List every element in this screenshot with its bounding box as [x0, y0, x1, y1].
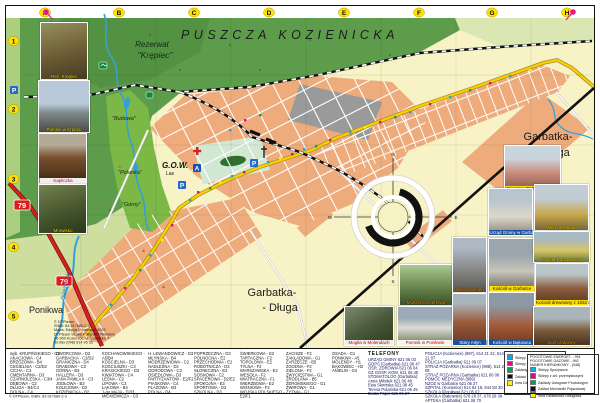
town-map-garbatka: { "map": { "labels": { "forest": "PUSZCZ… — [0, 0, 600, 400]
legend-box-front: POGOTOWIE ENERGET. - 991 POGOTOWIE GAZOW… — [527, 354, 599, 395]
legend-item: Inna Działalność Usługowa — [528, 392, 598, 398]
hamlet-budowa-label: "Budowa" — [112, 116, 137, 122]
street-index-panel: wyb. KRUPIŃSKIEGO - C2 AKACJOWA - C4 BRZ… — [6, 348, 594, 393]
photo-caption: Szkoła Podstawowa — [534, 257, 589, 262]
photo-caption: Stary młyn — [453, 340, 486, 345]
legend-color-swatch — [530, 380, 536, 386]
photo-caption: Urząd Gminy w Garbatce — [489, 230, 532, 235]
photo-krepiec-reserve: Rez. Krępiec — [40, 22, 88, 80]
grid-row-label: 5 — [12, 314, 16, 321]
street-index-column: ŚWIERKOWA - E2 TARTACZNA - F2 TOPOLOWA -… — [240, 352, 292, 399]
photo-school: Szkoła Podstawowa — [533, 231, 590, 263]
photo-caption: Kapliczka — [39, 178, 86, 183]
photo-anthill-forest: Mrowisko — [38, 184, 87, 234]
photo-caption: Pomnik w Krępcu — [39, 127, 89, 132]
legend-color-swatch — [530, 373, 536, 379]
emergency-number: NUMER KIERUNKOWY - (048) — [530, 362, 580, 367]
legend-item-label: Inna Działalność Usługowa — [538, 393, 581, 398]
legend-color-swatch — [507, 354, 513, 360]
street-index-column: KOCHANOWSKIEGO - A5/B4 KOŚCIELNA - D3 KO… — [102, 352, 154, 399]
photo-commune-office: Urząd Gminy w Garbatce — [488, 188, 533, 236]
town-name-bottom-line2: - Długa — [262, 302, 298, 314]
grid-col-label: B — [117, 10, 122, 17]
photo-caption: Kościół w Bąkowcu — [489, 340, 534, 345]
photo-caption: Muszla koncertowa — [400, 300, 452, 305]
photo-old-mill: Stary młyn — [452, 293, 487, 346]
parking-icon: P — [180, 183, 185, 190]
hamlet-gorny-label: "Górny" — [122, 202, 142, 208]
photo-caption: Wieża ciśnień — [453, 287, 486, 292]
photo-ponikwa-monument: Pomnik w Ponikwie — [397, 306, 453, 346]
photo-caption: Pomnik w Ponikwie — [398, 340, 452, 345]
legend-color-swatch — [507, 374, 513, 380]
legend-item-label: Sklepy Spożywcze — [538, 367, 568, 372]
compass-n: N — [391, 152, 394, 157]
grid-col-label: E — [342, 10, 347, 17]
footer-imprint: © DTPteam, ISBN: 83-917680-2-3 — [9, 394, 67, 399]
photo-church-bakowiec: Kościół w Bąkowcu — [488, 292, 535, 346]
photo-caption: Kościół w Garbatce — [489, 286, 534, 291]
publisher-imprint: © DTPteam ISBN: 83-917680-2-3 Mapa. Edyc… — [54, 320, 119, 345]
photo-chapel: Kapliczka — [38, 133, 87, 184]
legend-color-swatch — [507, 367, 513, 373]
phones-column-1: URZĄD GMINY 621 06 03 GOPS (Garbatka) 62… — [368, 358, 424, 396]
photo-church-garbatka: Kościół w Garbatce — [488, 238, 535, 292]
legend-color-swatch — [507, 361, 513, 367]
grid-col-label: C — [192, 10, 197, 17]
legend-item-label: Zakład Mechaniki Pojazdowej — [538, 387, 585, 392]
photo-wooden-villa: Willa drewniana — [534, 184, 589, 231]
gow-sub-label: Las — [166, 171, 175, 177]
photo-caption: Dom zakonny — [534, 340, 590, 345]
street-index-column: ZACISZE - F2 ZAKŁADOWA - G1 ZARZECZE - B… — [286, 352, 338, 395]
legend-item-label: Sklepy z art. przemysłowymi — [538, 374, 583, 379]
photo-water-tower: Wieża ciśnień — [452, 237, 487, 293]
legend-item-label: Zakłady Usługowe Produkcyjne — [538, 380, 588, 385]
grid-col-label: D — [267, 10, 272, 17]
forest-name-label: PUSZCZA KOZIENICKA — [181, 28, 399, 42]
legend-color-swatch — [530, 386, 536, 392]
photo-bandshell: Muszla koncertowa — [399, 264, 453, 306]
gow-label: G.O.W. — [162, 161, 188, 170]
grid-col-label: G — [489, 10, 494, 17]
compass-e: E — [454, 215, 457, 220]
point-a-icon: A — [195, 166, 200, 173]
parking-icon: P — [252, 161, 257, 168]
street-index-column: wyb. KRUPIŃSKIEGO - C2 AKACJOWA - C4 BRZ… — [10, 352, 62, 395]
grid-row-label: 4 — [12, 245, 16, 252]
town-name-right-line1: Garbatka- — [524, 131, 573, 143]
village-ponikwa-label: Ponikwa — [29, 305, 63, 315]
parking-icon: P — [12, 88, 17, 95]
photo-caption: Kościół drewniany z 1932 r. — [536, 300, 588, 305]
reserve-label-line1: Rezerwat — [135, 40, 170, 49]
grid-row-label: 1 — [12, 39, 16, 46]
street-index-column: DWORCOWA - D2 GARBACKA - C2/D2 GRANICZNA… — [56, 352, 108, 395]
legend-item: Zakłady Usługowe Produkcyjne — [528, 379, 598, 385]
grid-letter-strip — [6, 6, 594, 18]
reserve-label-line2: "Krępiec" — [138, 50, 174, 60]
street-index-column: H. LEWANDOWICZ - D3 MŁYŃSKA - B4 MODRZEW… — [148, 352, 200, 395]
photo-wooden-church: Kościół drewniany z 1932 r. — [535, 263, 589, 306]
road-79-shield: 79 — [18, 201, 26, 210]
photo-religious-house: Dom zakonny — [533, 306, 591, 346]
grid-row-label: 3 — [12, 177, 16, 184]
legend-color-swatch — [507, 380, 513, 386]
town-name-bottom-line1: Garbatka- — [248, 287, 297, 299]
legend-color-swatch — [530, 392, 536, 398]
phones-title: TELEFONY — [368, 351, 399, 357]
compass-s: S — [391, 279, 394, 284]
phones-column-2: POLICJA (Kozienice) (997), 614 21 22, 61… — [425, 352, 507, 403]
hamlet-polanka-label: "Polanka" — [118, 170, 143, 176]
photo-war-grave: Mogiła w Molendach — [344, 306, 394, 346]
photo-caption: Mogiła w Molendach — [345, 340, 393, 345]
grid-row-label: 2 — [12, 107, 16, 114]
grid-col-label: F — [417, 10, 421, 17]
photo-caption: Rez. Krępiec — [41, 74, 87, 79]
street-index-column: POPRZECZNA - D3 PÓŁNOCNA - E2 PRZECHODNI… — [194, 352, 246, 395]
photo-caption: Mrowisko — [39, 228, 86, 233]
photo-monument: Pomnik w Krępcu — [38, 80, 90, 133]
legend-color-swatch — [530, 367, 536, 373]
trail-sign-icon — [146, 92, 153, 98]
photo-caption: Willa drewniana — [535, 225, 588, 230]
